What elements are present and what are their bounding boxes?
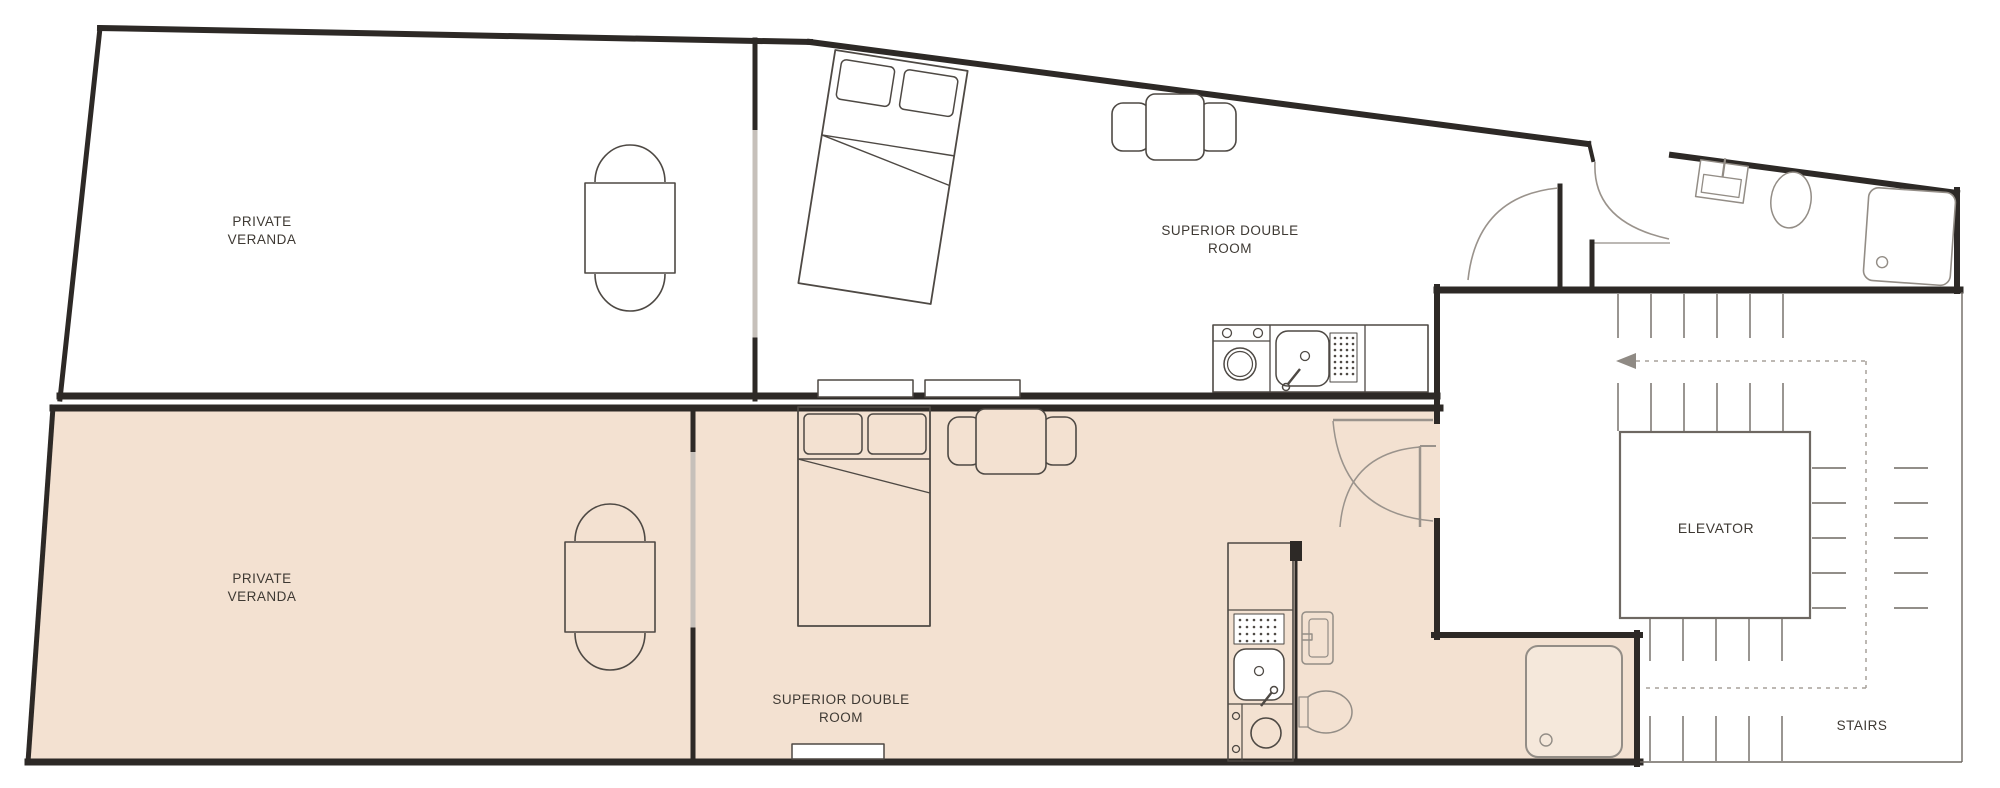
label-superior-double-top: SUPERIOR DOUBLE: [1161, 223, 1298, 238]
label-stairs: STAIRS: [1837, 718, 1888, 733]
toilet-icon: [1299, 691, 1352, 733]
floorplan-page: PRIVATE VERANDA PRIVATE VERANDA SUPERIOR…: [0, 0, 2000, 788]
wall-stub: [1290, 541, 1302, 561]
window: [925, 380, 1020, 397]
chair-icon: [1112, 103, 1150, 151]
table-icon: [585, 183, 675, 273]
top-unit-floor: [60, 28, 1957, 397]
window: [792, 744, 884, 759]
top-unit: [60, 28, 1960, 421]
arrow-icon: [1616, 353, 1636, 369]
stove-icon: [1234, 614, 1284, 644]
label-superior-double-bottom: ROOM: [819, 710, 863, 725]
shower-icon: [1863, 187, 1956, 286]
stair-treads-top: [1618, 294, 1783, 431]
table-icon: [565, 542, 655, 632]
label-private-veranda-top: VERANDA: [228, 232, 297, 247]
shower-icon: [1526, 646, 1622, 757]
stairwell-area: [1616, 292, 1962, 762]
label-private-veranda-top: PRIVATE: [232, 214, 291, 229]
label-superior-double-bottom: SUPERIOR DOUBLE: [772, 692, 909, 707]
bath-sink-icon: [1302, 612, 1333, 664]
label-elevator: ELEVATOR: [1678, 520, 1754, 536]
window: [818, 380, 913, 397]
stair-treads-right: [1812, 468, 1928, 608]
stair-treads-bottom: [1650, 619, 1782, 761]
top-room-table-set: [1112, 94, 1236, 160]
label-private-veranda-bottom: VERANDA: [228, 589, 297, 604]
table-icon: [976, 409, 1046, 474]
floorplan-svg: PRIVATE VERANDA PRIVATE VERANDA SUPERIOR…: [0, 0, 2000, 788]
label-private-veranda-bottom: PRIVATE: [232, 571, 291, 586]
table-icon: [1146, 94, 1204, 160]
top-kitchenette: [1213, 325, 1428, 392]
label-superior-double-top: ROOM: [1208, 241, 1252, 256]
